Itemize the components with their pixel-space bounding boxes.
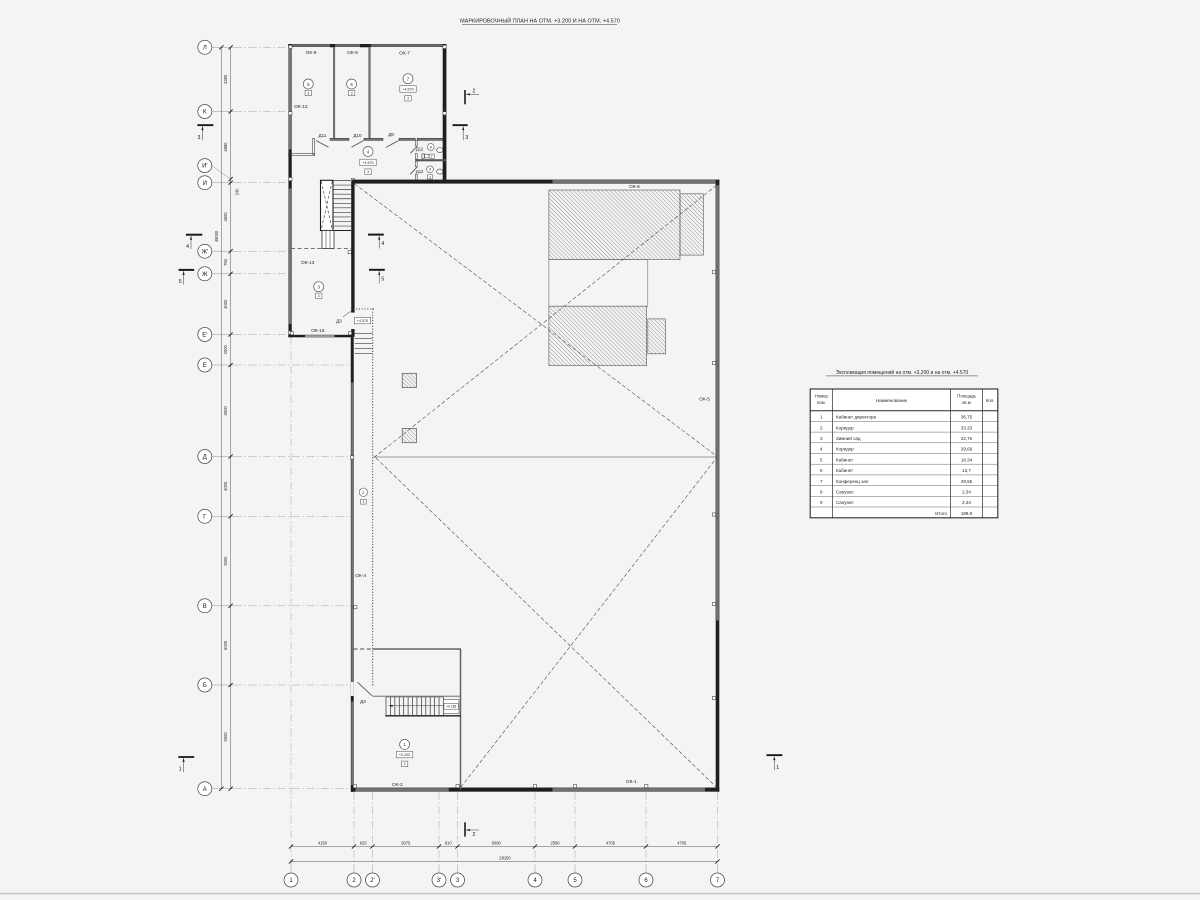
svg-text:Д8: Д8: [388, 132, 394, 137]
svg-text:Б: Б: [203, 683, 207, 689]
svg-text:5: 5: [179, 279, 182, 285]
svg-text:36,75: 36,75: [961, 415, 973, 420]
svg-text:Коридор: Коридор: [836, 425, 854, 430]
svg-text:Д12: Д12: [416, 147, 424, 152]
svg-text:ОК-13: ОК-13: [301, 260, 315, 266]
svg-text:750: 750: [223, 258, 228, 266]
svg-text:4000: 4000: [223, 481, 228, 491]
svg-text:Номер: Номер: [815, 394, 829, 399]
svg-text:Площадь: Площадь: [957, 394, 976, 399]
svg-text:925: 925: [360, 840, 368, 845]
svg-text:3: 3: [367, 170, 369, 174]
svg-text:1: 1: [776, 765, 779, 771]
svg-text:3: 3: [351, 91, 353, 95]
svg-text:Д10: Д10: [353, 133, 362, 138]
svg-text:188,8: 188,8: [961, 511, 973, 516]
svg-text:ОК-8: ОК-8: [347, 50, 358, 56]
svg-text:18,34: 18,34: [961, 457, 973, 462]
svg-text:6000: 6000: [223, 640, 228, 650]
svg-text:5075: 5075: [401, 840, 411, 845]
svg-text:Коридор: Коридор: [836, 447, 854, 452]
svg-text:4: 4: [186, 244, 189, 250]
svg-text:3: 3: [407, 97, 409, 101]
svg-text:6000: 6000: [223, 406, 228, 416]
svg-text:3: 3: [429, 175, 431, 179]
svg-text:Кол.: Кол.: [986, 398, 995, 403]
svg-text:4: 4: [381, 241, 384, 247]
svg-text:Д12: Д12: [416, 169, 424, 174]
svg-text:5: 5: [381, 276, 384, 282]
svg-text:Д3: Д3: [360, 699, 366, 704]
svg-text:2000: 2000: [223, 345, 228, 355]
svg-text:Кабинет: Кабинет: [836, 468, 853, 473]
svg-text:МАРКИРОВОЧНЫЙ ПЛАН НА ОТМ. +3.: МАРКИРОВОЧНЫЙ ПЛАН НА ОТМ. +3.200 И НА О…: [460, 16, 620, 24]
svg-text:ОК-16: ОК-16: [311, 328, 325, 334]
svg-text:Ж: Ж: [202, 272, 208, 278]
svg-text:Кабинет: Кабинет: [836, 457, 853, 462]
svg-text:8: 8: [430, 145, 432, 149]
svg-text:Е′: Е′: [202, 333, 208, 339]
svg-text:4705: 4705: [677, 840, 687, 845]
svg-text:2: 2: [431, 155, 433, 159]
svg-text:И: И: [203, 181, 207, 187]
svg-text:Кабинет директора: Кабинет директора: [836, 415, 877, 420]
svg-text:240: 240: [234, 188, 239, 196]
svg-text:+4.570: +4.570: [402, 87, 413, 91]
svg-text:+4.570: +4.570: [357, 319, 368, 323]
svg-text:ОК-5: ОК-5: [699, 397, 710, 403]
svg-text:Д3: Д3: [336, 318, 342, 323]
svg-text:1: 1: [179, 767, 182, 773]
svg-text:Л: Л: [203, 45, 207, 51]
svg-text:ОК-4: ОК-4: [355, 573, 366, 579]
svg-text:6000: 6000: [223, 556, 228, 566]
svg-text:ОК-9: ОК-9: [306, 50, 317, 56]
svg-text:3: 3: [465, 135, 468, 141]
svg-text:29,69: 29,69: [961, 447, 973, 452]
svg-text:А: А: [203, 787, 207, 793]
svg-text:5090: 5090: [492, 840, 502, 845]
svg-text:33,33: 33,33: [961, 425, 973, 430]
svg-text:К: К: [203, 110, 207, 116]
svg-text:22,76: 22,76: [961, 436, 973, 441]
svg-text:ОК-2: ОК-2: [392, 782, 403, 788]
svg-text:4000: 4000: [223, 299, 228, 309]
svg-text:2: 2: [404, 762, 406, 766]
svg-text:Д11: Д11: [319, 133, 327, 138]
svg-text:Е: Е: [203, 363, 207, 369]
svg-text:Экспликация помещений на отм.: Экспликация помещений на отм. +3.200 и н…: [836, 369, 969, 376]
svg-text:Итого: Итого: [935, 511, 947, 516]
svg-text:+4.570: +4.570: [362, 161, 373, 165]
svg-text:3: 3: [318, 294, 320, 298]
svg-text:2,34: 2,34: [962, 500, 971, 505]
svg-text:ОК-1: ОК-1: [626, 779, 637, 785]
svg-text:6000: 6000: [223, 732, 228, 742]
svg-text:2: 2: [473, 832, 476, 838]
svg-text:3: 3: [362, 500, 364, 504]
svg-text:В: В: [203, 604, 207, 610]
svg-text:Санузел: Санузел: [836, 490, 854, 495]
svg-text:Конференц зал: Конференц зал: [836, 479, 869, 484]
svg-text:49000: 49000: [214, 230, 219, 242]
svg-text:Д: Д: [203, 455, 207, 461]
svg-text:И′: И′: [202, 164, 208, 170]
svg-text:3: 3: [307, 91, 309, 95]
svg-text:Наименование: Наименование: [876, 398, 908, 403]
svg-text:кв.м: кв.м: [962, 400, 970, 405]
svg-text:Зимний сад: Зимний сад: [836, 435, 861, 441]
svg-text:пом.: пом.: [817, 400, 826, 405]
svg-text:ОК-6: ОК-6: [629, 184, 640, 190]
svg-text:+3.200: +3.200: [399, 753, 410, 757]
svg-text:9: 9: [429, 168, 431, 172]
svg-text:13,7: 13,7: [962, 468, 971, 473]
svg-text:29,55: 29,55: [961, 479, 973, 484]
svg-text:ОК-7: ОК-7: [399, 51, 410, 57]
svg-text:ОК-12: ОК-12: [294, 104, 308, 110]
svg-text:4880: 4880: [223, 142, 228, 152]
svg-text:28150: 28150: [499, 855, 511, 860]
svg-text:Ж′: Ж′: [201, 249, 209, 255]
svg-text:2: 2: [473, 88, 476, 94]
svg-text:4380: 4380: [223, 74, 228, 84]
svg-text:2590: 2590: [550, 840, 560, 845]
svg-text:4150: 4150: [318, 840, 328, 845]
svg-text:3: 3: [198, 135, 201, 141]
svg-text:4500: 4500: [223, 212, 228, 222]
svg-text:Санузел: Санузел: [836, 500, 854, 505]
svg-text:+4.185: +4.185: [446, 705, 456, 709]
svg-text:4705: 4705: [606, 840, 616, 845]
svg-text:2,34: 2,34: [962, 490, 971, 495]
svg-text:910: 910: [445, 840, 453, 845]
